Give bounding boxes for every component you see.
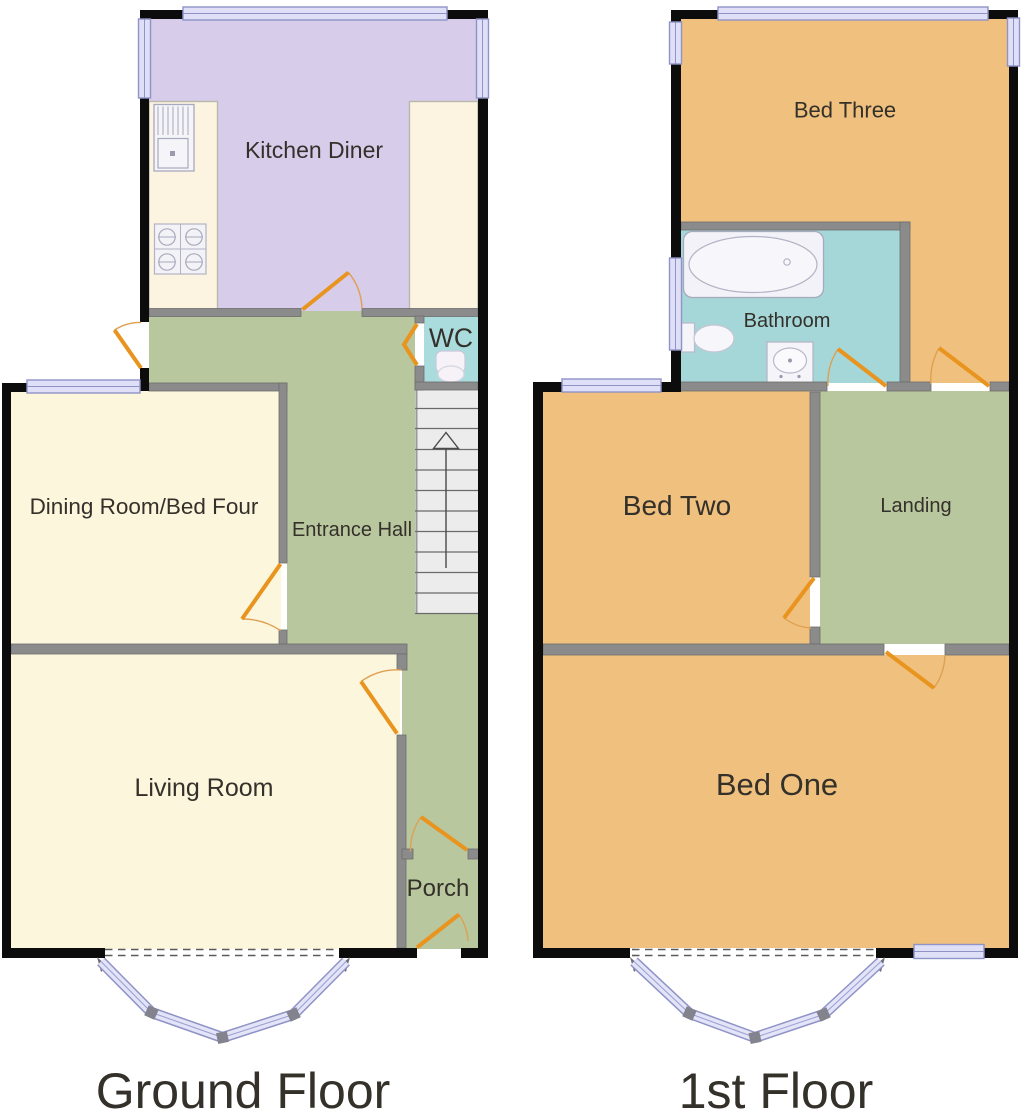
svg-text:Living Room: Living Room [135, 774, 274, 802]
svg-text:Bathroom: Bathroom [744, 310, 831, 332]
svg-text:WC: WC [429, 323, 473, 353]
svg-text:Porch: Porch [407, 875, 470, 902]
svg-text:Ground Floor: Ground Floor [96, 1063, 391, 1111]
svg-text:Landing: Landing [880, 495, 951, 517]
svg-text:Bed Three: Bed Three [794, 98, 896, 123]
svg-text:Kitchen Diner: Kitchen Diner [245, 137, 383, 163]
svg-text:Bed One: Bed One [716, 767, 838, 802]
svg-text:Bed Two: Bed Two [623, 490, 731, 521]
svg-text:1st Floor: 1st Floor [679, 1063, 874, 1111]
svg-text:Entrance Hall: Entrance Hall [292, 519, 412, 541]
svg-text:Dining Room/Bed Four: Dining Room/Bed Four [30, 494, 259, 519]
